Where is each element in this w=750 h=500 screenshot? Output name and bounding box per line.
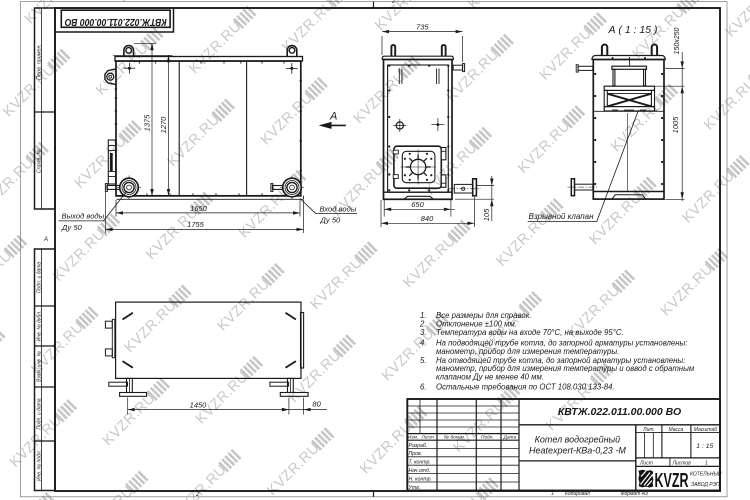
svg-text:Листов: Листов bbox=[672, 461, 692, 467]
svg-text:1: 1 bbox=[551, 491, 554, 497]
svg-text:1005: 1005 bbox=[671, 116, 680, 134]
svg-text:Формат А3: Формат А3 bbox=[621, 491, 649, 497]
svg-text:Ду 50: Ду 50 bbox=[320, 216, 342, 225]
svg-text:Подп. и дата: Подп. и дата bbox=[36, 398, 42, 430]
svg-text:Нач.отд.: Нач.отд. bbox=[409, 468, 431, 474]
svg-text:1755: 1755 bbox=[187, 220, 205, 229]
svg-text:5.: 5. bbox=[420, 356, 427, 365]
svg-text:Выход воды: Выход воды bbox=[62, 211, 105, 220]
svg-text:№ докум.: № докум. bbox=[444, 435, 465, 441]
svg-text:Изм.: Изм. bbox=[408, 435, 418, 441]
svg-text:Котел водогрейный: Котел водогрейный bbox=[535, 435, 621, 445]
svg-text:Дата: Дата bbox=[503, 435, 517, 441]
svg-text:Инв. № подл.: Инв. № подл. bbox=[36, 450, 42, 481]
svg-text:2: 2 bbox=[391, 0, 395, 5]
svg-text:Утв.: Утв. bbox=[409, 485, 421, 491]
svg-text:Heatexpert-КВа-0,23 -М: Heatexpert-КВа-0,23 -М bbox=[529, 446, 626, 456]
svg-text:Остальные требования по ОСТ 10: Остальные требования по ОСТ 108.030.133-… bbox=[436, 382, 615, 391]
svg-text:КВТЖ.022.011.00.000 ВО: КВТЖ.022.011.00.000 ВО bbox=[65, 16, 167, 27]
svg-text:Т. контр.: Т. контр. bbox=[409, 460, 431, 466]
svg-text:Копировал: Копировал bbox=[565, 491, 590, 497]
svg-text:Справ. №: Справ. № bbox=[36, 149, 42, 174]
svg-text:Инв. № дубл.: Инв. № дубл. bbox=[36, 311, 42, 342]
svg-text:манометр, прибор для измерения: манометр, прибор для измерения температу… bbox=[436, 347, 619, 356]
svg-text:1450: 1450 bbox=[190, 401, 208, 410]
svg-text:840: 840 bbox=[421, 214, 434, 223]
svg-text:150х250: 150х250 bbox=[674, 27, 681, 54]
svg-text:Масса: Масса bbox=[669, 427, 684, 433]
svg-text:2: 2 bbox=[195, 492, 200, 498]
svg-text:Лист: Лист bbox=[421, 435, 434, 441]
svg-text:1270: 1270 bbox=[159, 116, 168, 134]
svg-text:клапаном Ду не менее 40 мм.: клапаном Ду не менее 40 мм. bbox=[436, 373, 544, 382]
svg-text:Подп.: Подп. bbox=[481, 435, 494, 441]
svg-text:650: 650 bbox=[411, 200, 424, 209]
svg-text:Вход воды: Вход воды bbox=[320, 204, 357, 213]
svg-text:Н. контр.: Н. контр. bbox=[409, 476, 432, 482]
svg-text:80: 80 bbox=[312, 399, 321, 408]
svg-text:6.: 6. bbox=[420, 382, 427, 391]
svg-text:4.: 4. bbox=[420, 338, 427, 347]
svg-text:Лист: Лист bbox=[639, 461, 653, 467]
svg-text:Температура воды на входе 70°С: Температура воды на входе 70°С, на выход… bbox=[436, 328, 624, 337]
svg-text:1375: 1375 bbox=[143, 114, 152, 132]
svg-text:Лит.: Лит. bbox=[642, 427, 655, 433]
svg-text:Ду 50: Ду 50 bbox=[61, 223, 83, 232]
svg-text:Взам. инв. №: Взам. инв. № bbox=[36, 350, 42, 382]
svg-text:КОТЕЛЬНЫЙ: КОТЕЛЬНЫЙ bbox=[690, 470, 722, 478]
svg-text:3.: 3. bbox=[420, 328, 427, 337]
svg-text:ЗАВОД РЭП: ЗАВОД РЭП bbox=[691, 482, 720, 488]
svg-text:Взрывной клапан: Взрывной клапан bbox=[529, 212, 595, 221]
svg-text:Пров.: Пров. bbox=[409, 451, 423, 457]
svg-text:735: 735 bbox=[416, 23, 429, 32]
svg-text:А: А bbox=[43, 237, 48, 243]
svg-text:На подводящей трубе котла, до: На подводящей трубе котла, до запорной а… bbox=[436, 338, 687, 347]
svg-text:105: 105 bbox=[482, 208, 491, 221]
svg-text:А ( 1 : 15 ): А ( 1 : 15 ) bbox=[607, 24, 657, 36]
svg-text:1 : 15: 1 : 15 bbox=[696, 443, 713, 450]
svg-text:KVZR: KVZR bbox=[655, 470, 689, 492]
svg-text:1650: 1650 bbox=[190, 204, 208, 213]
svg-text:Масштаб: Масштаб bbox=[694, 427, 718, 433]
svg-text:КВТЖ.022.011.00.000 ВО: КВТЖ.022.011.00.000 ВО bbox=[558, 406, 681, 418]
svg-text:Подп. и дата: Подп. и дата bbox=[36, 262, 42, 294]
svg-text:1: 1 bbox=[705, 461, 708, 467]
svg-text:Разраб.: Разраб. bbox=[409, 443, 428, 449]
svg-text:А: А bbox=[329, 111, 337, 123]
svg-text:Перв. примен.: Перв. примен. bbox=[36, 44, 42, 80]
